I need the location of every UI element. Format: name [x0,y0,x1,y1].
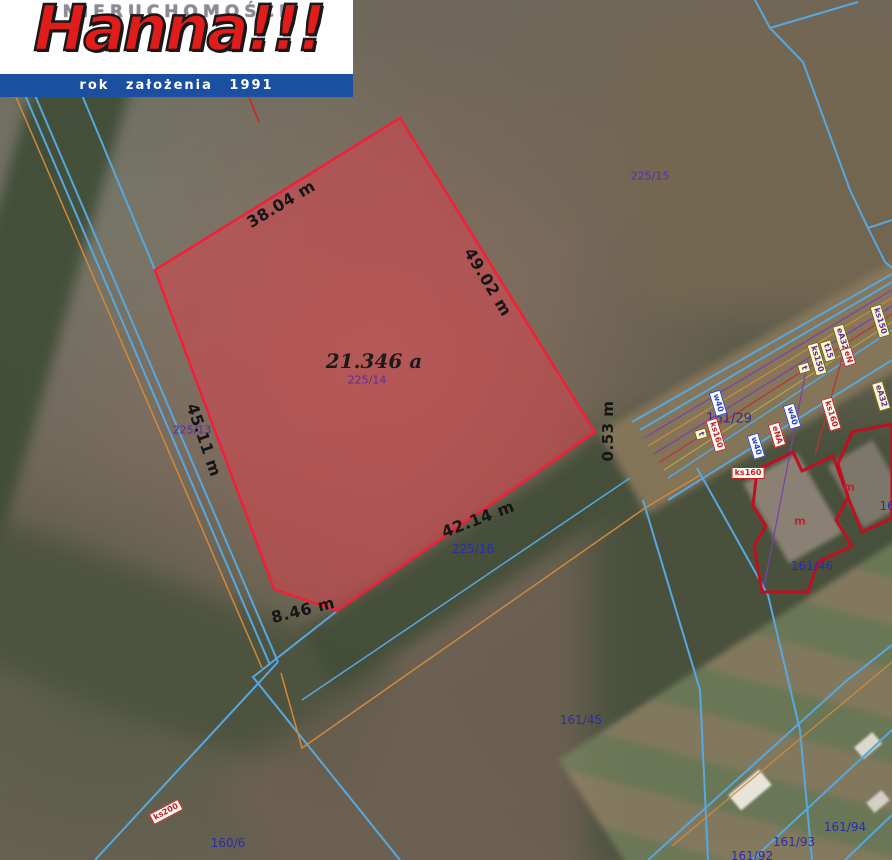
highlighted-parcel-225-14 [155,118,595,611]
blue-boundary-top-v [770,2,858,28]
logo-leader-line [249,97,259,122]
blue-strip-1 [648,645,892,860]
utility-purple-branch [763,360,808,592]
agency-logo: NIERUCHOMOŚCI Hanna!!! rok założenia 199… [0,0,353,97]
boundary-lines-layer [0,0,892,860]
blue-boundary-top-spur [868,220,892,228]
blue-boundary-garden-2 [643,500,708,860]
blue-strip-2 [752,730,892,860]
aerial-map: 38.04 m 49.02 m 45.11 m 42.14 m 8.46 m 0… [0,0,892,860]
building-outline-2 [838,424,892,532]
orange-strip [672,662,892,846]
blue-boundary-to-parcel [82,95,155,270]
utility-label-ks160-c: ks160 [732,467,765,479]
building-outline-1 [753,452,852,592]
blue-boundary-junction-left [95,662,278,860]
logo-main-text: Hanna!!! [2,0,355,65]
logo-tagline: rok założenia 1991 [0,74,353,97]
blue-strip-3 [845,815,892,860]
